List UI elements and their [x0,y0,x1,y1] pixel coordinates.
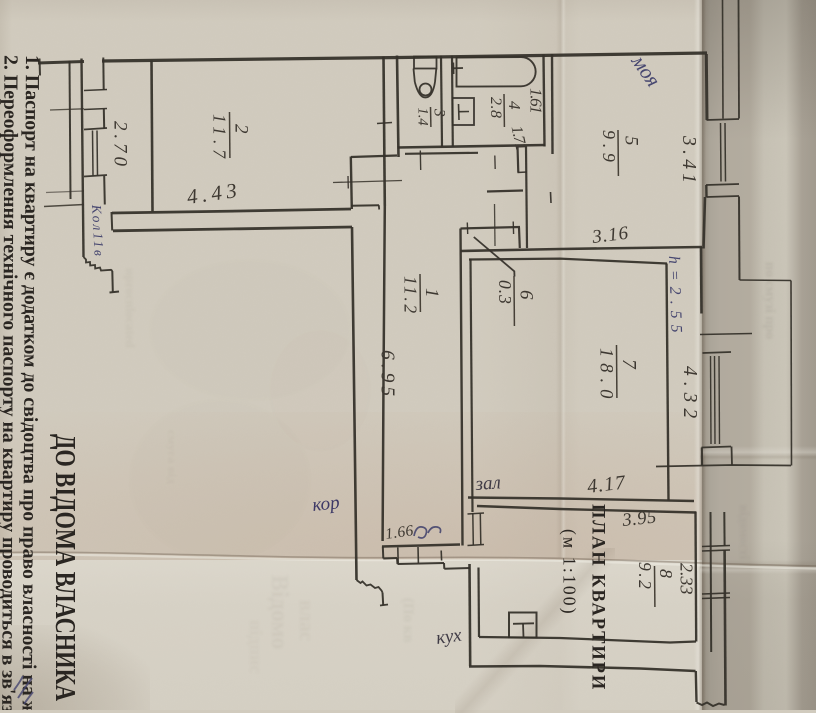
svg-text:3: 3 [431,108,448,117]
svg-text:підпис: підпис [246,620,266,673]
svg-text:2.33: 2.33 [677,563,697,595]
svg-text:5: 5 [621,136,642,146]
svg-text:1.4: 1.4 [415,108,431,126]
svg-text:ДО ВІДОМА ВЛАСНИКА: ДО ВІДОМА ВЛАСНИКА [49,434,80,702]
svg-text:влас: влас [295,600,317,641]
svg-text:1: 1 [421,288,442,298]
svg-text:6: 6 [516,290,537,300]
svg-text:зал: зал [474,472,502,495]
svg-text:11.7: 11.7 [210,114,230,163]
svg-text:18.0: 18.0 [596,348,616,404]
svg-text:6.95: 6.95 [377,350,398,400]
svg-text:1.61: 1.61 [527,88,546,113]
svg-text:2. Переоформлення технічного п: 2. Переоформлення технічного паспорту на… [0,55,21,710]
svg-text:(м 1:100): (м 1:100) [560,529,580,616]
svg-text:2: 2 [231,124,252,134]
svg-text:8: 8 [656,569,676,578]
svg-text:4.32: 4.32 [679,366,700,424]
svg-text:Кол11в: Кол11в [89,203,107,258]
svg-text:(По кв: (По кв [400,598,416,643]
svg-text:9.2: 9.2 [635,562,655,591]
svg-text:4: 4 [505,101,524,110]
svg-text:2.70: 2.70 [110,121,131,170]
svg-text:кор: кор [311,492,340,516]
svg-text:7: 7 [618,359,639,370]
svg-text:11.2: 11.2 [401,276,421,316]
svg-text:нprocпlocated: нprocпlocated [123,268,138,348]
svg-text:Відомо: Відомо [266,575,292,649]
svg-text:9.9: 9.9 [599,130,619,167]
svg-text:кух: кух [435,625,464,649]
svg-text:2.8: 2.8 [487,97,504,119]
svg-text:3.41: 3.41 [678,135,699,187]
svg-text:0.3: 0.3 [495,280,515,305]
svg-text:по смузі про: по смузі про [762,262,777,339]
svg-text:відомості: відомості [737,505,752,560]
svg-text:h=2.55: h=2.55 [665,256,685,339]
svg-text:ПЛАН КВАРТИРИ: ПЛАН КВАРТИРИ [588,504,608,691]
svg-text:3.95: 3.95 [620,507,657,531]
